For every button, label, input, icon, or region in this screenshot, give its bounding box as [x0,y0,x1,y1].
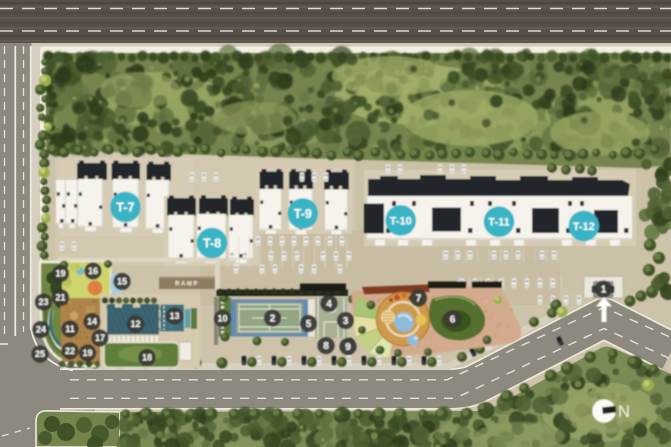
svg-text:T-11: T-11 [488,217,509,229]
svg-text:N: N [618,403,630,421]
svg-text:14: 14 [87,317,97,327]
svg-text:23: 23 [38,297,48,307]
svg-text:22: 22 [65,346,75,356]
svg-text:4: 4 [326,299,332,310]
svg-text:15: 15 [117,277,127,287]
svg-text:16: 16 [88,266,98,276]
svg-text:T-10: T-10 [390,215,412,227]
svg-text:12: 12 [130,319,140,329]
svg-text:RAMP: RAMP [175,282,199,288]
svg-text:T-8: T-8 [203,237,221,251]
svg-text:7: 7 [416,294,422,305]
svg-text:T-7: T-7 [116,201,134,215]
svg-text:T-9: T-9 [294,207,312,221]
svg-text:2: 2 [270,314,276,325]
svg-text:18: 18 [142,353,152,363]
svg-text:8: 8 [323,341,329,352]
svg-text:17: 17 [95,333,105,343]
svg-text:24: 24 [36,325,46,335]
svg-text:13: 13 [169,311,179,321]
svg-text:3: 3 [343,316,349,327]
svg-text:1: 1 [601,285,607,296]
svg-text:25: 25 [35,349,45,359]
svg-text:10: 10 [217,314,227,324]
svg-text:5: 5 [306,319,312,330]
svg-text:11: 11 [65,324,75,334]
svg-text:T-12: T-12 [573,221,595,233]
svg-text:21: 21 [55,293,65,303]
svg-text:19: 19 [55,269,65,279]
svg-text:19: 19 [82,348,92,358]
svg-text:9: 9 [345,342,351,353]
svg-text:6: 6 [450,315,456,326]
